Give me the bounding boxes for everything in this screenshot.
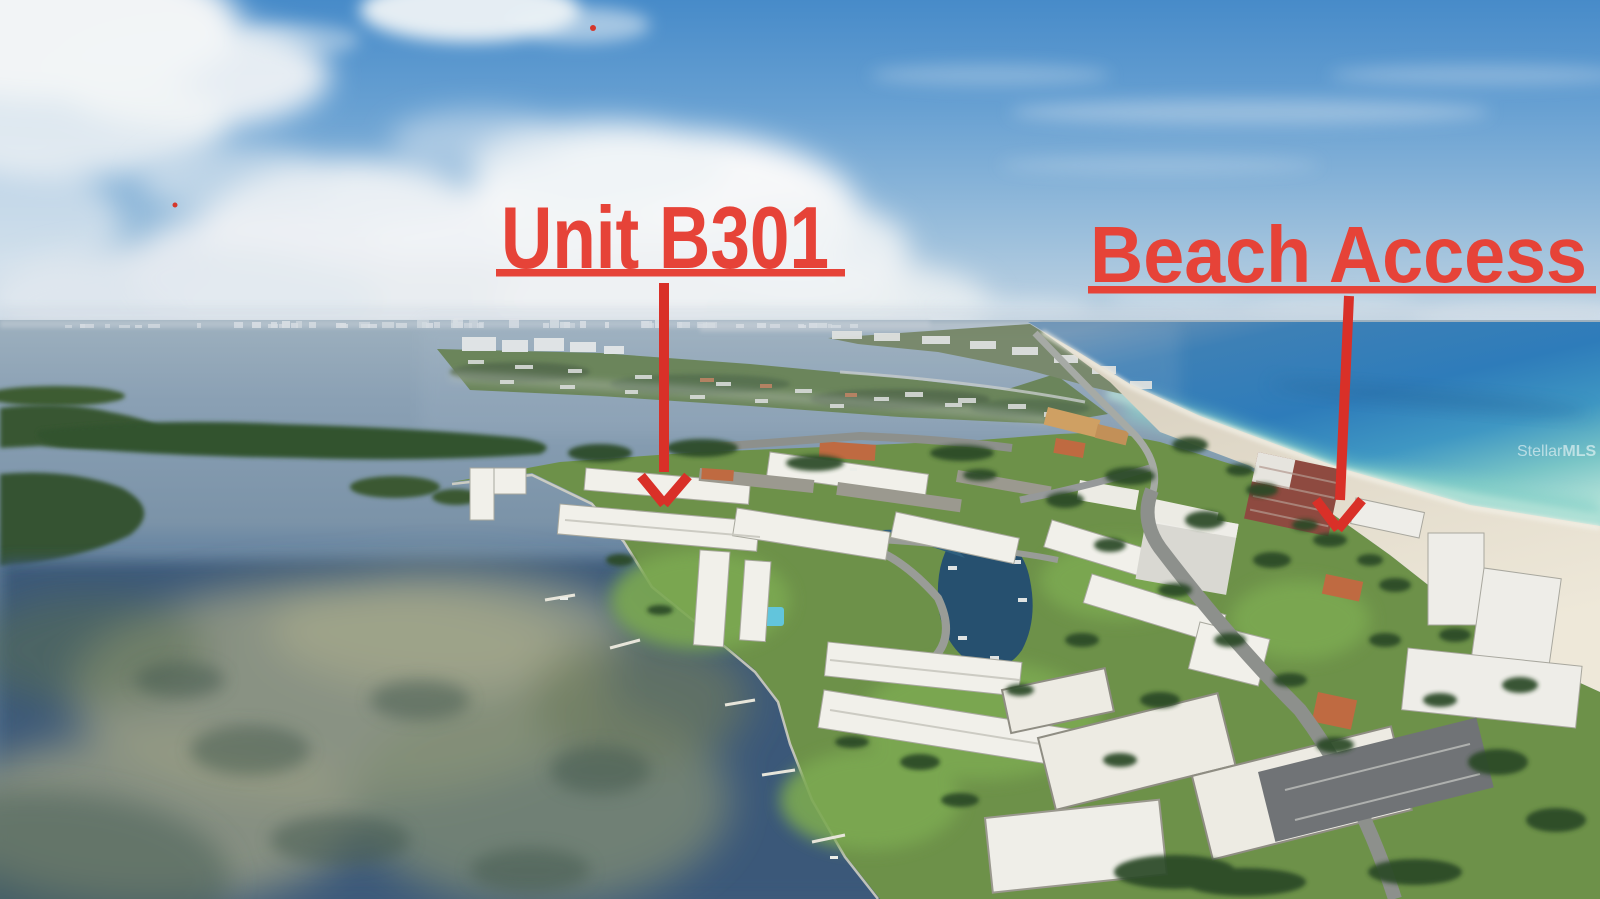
- svg-text:Beach Access: Beach Access: [1090, 210, 1587, 299]
- svg-text:StellarMLS: StellarMLS: [1517, 443, 1596, 460]
